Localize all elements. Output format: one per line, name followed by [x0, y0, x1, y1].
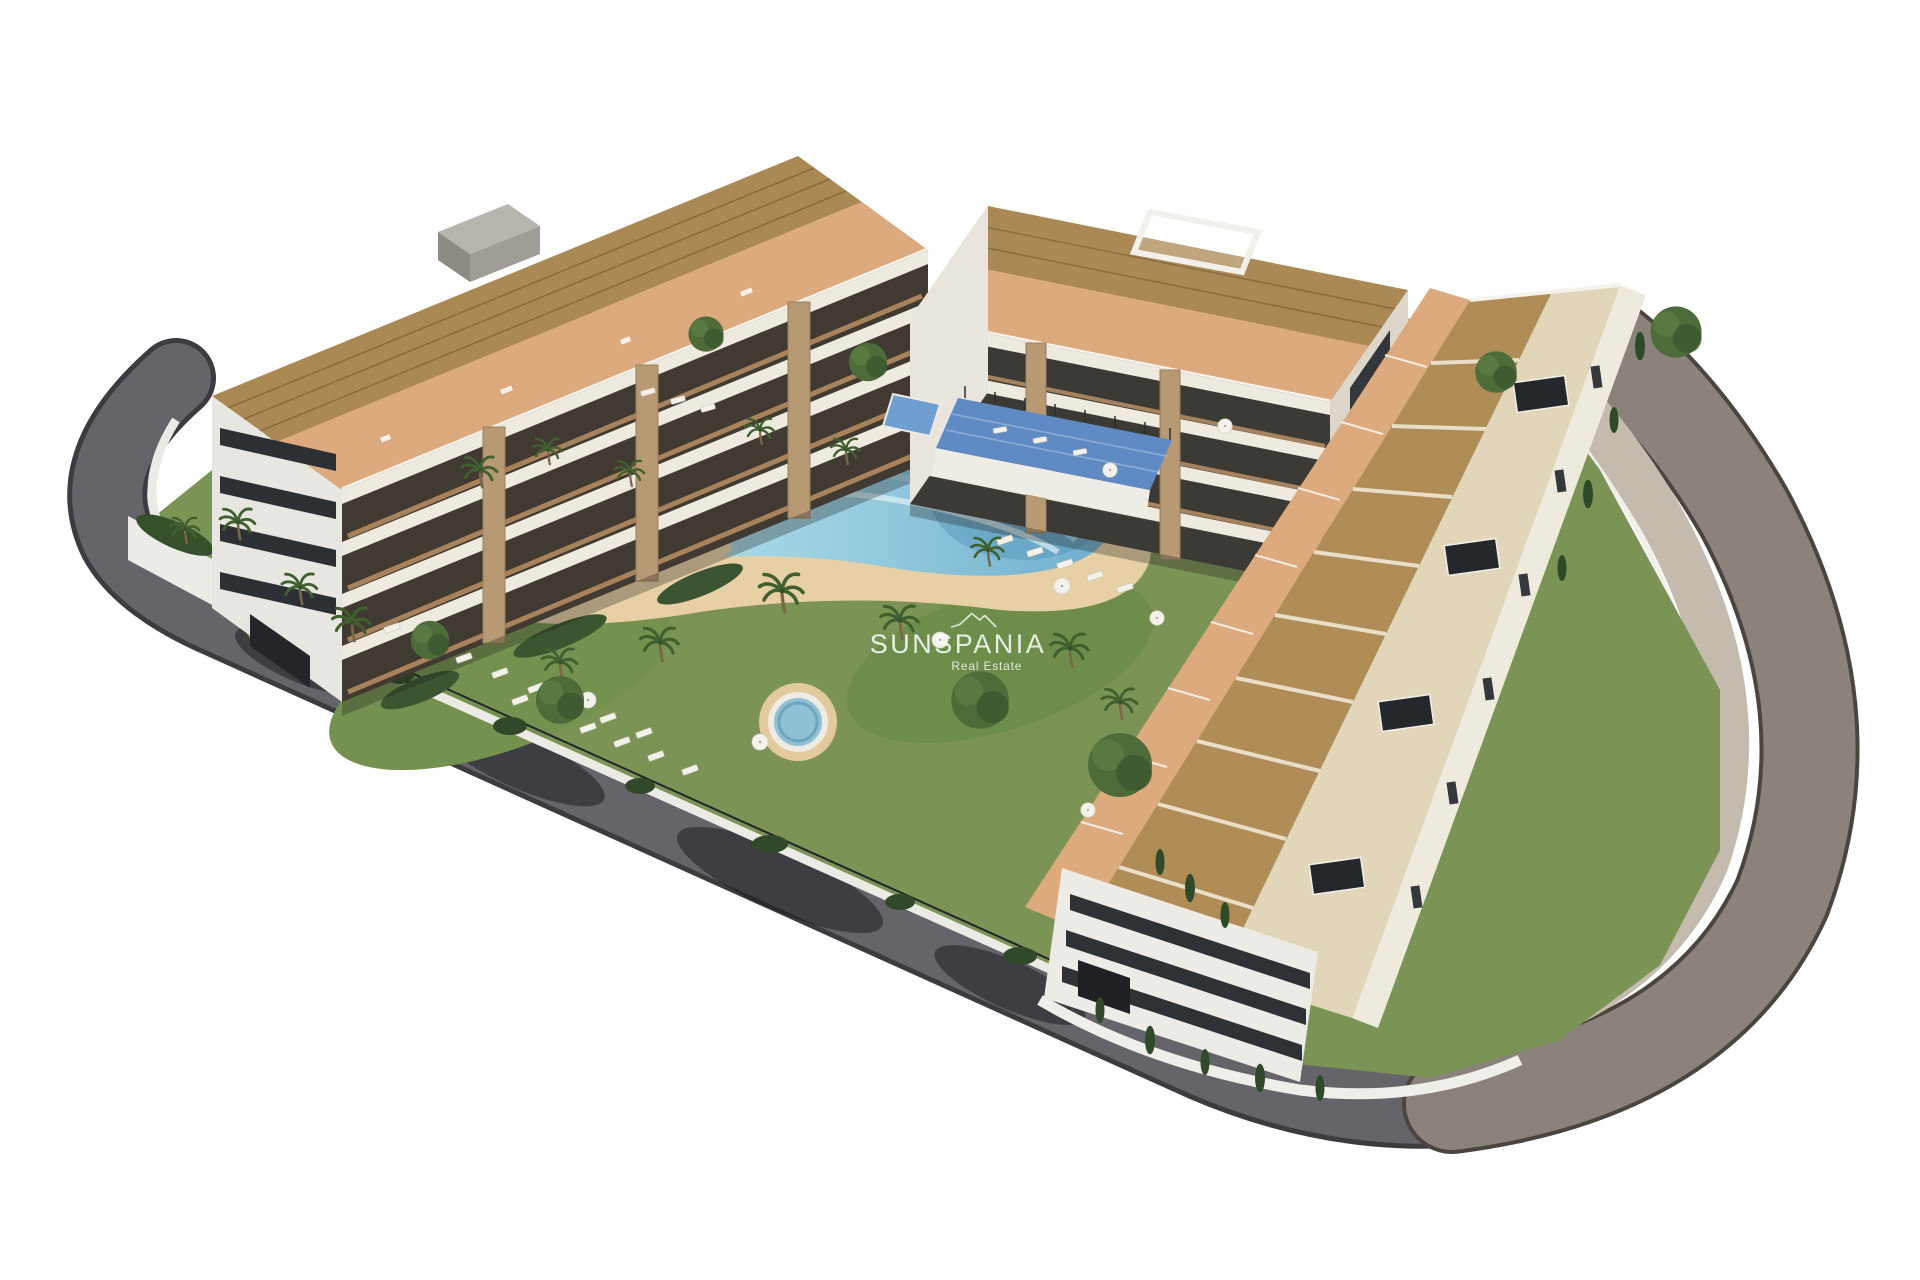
complex-render-scene [0, 0, 1920, 1280]
render-canvas: SUNSPANIA Real Estate [0, 0, 1920, 1280]
